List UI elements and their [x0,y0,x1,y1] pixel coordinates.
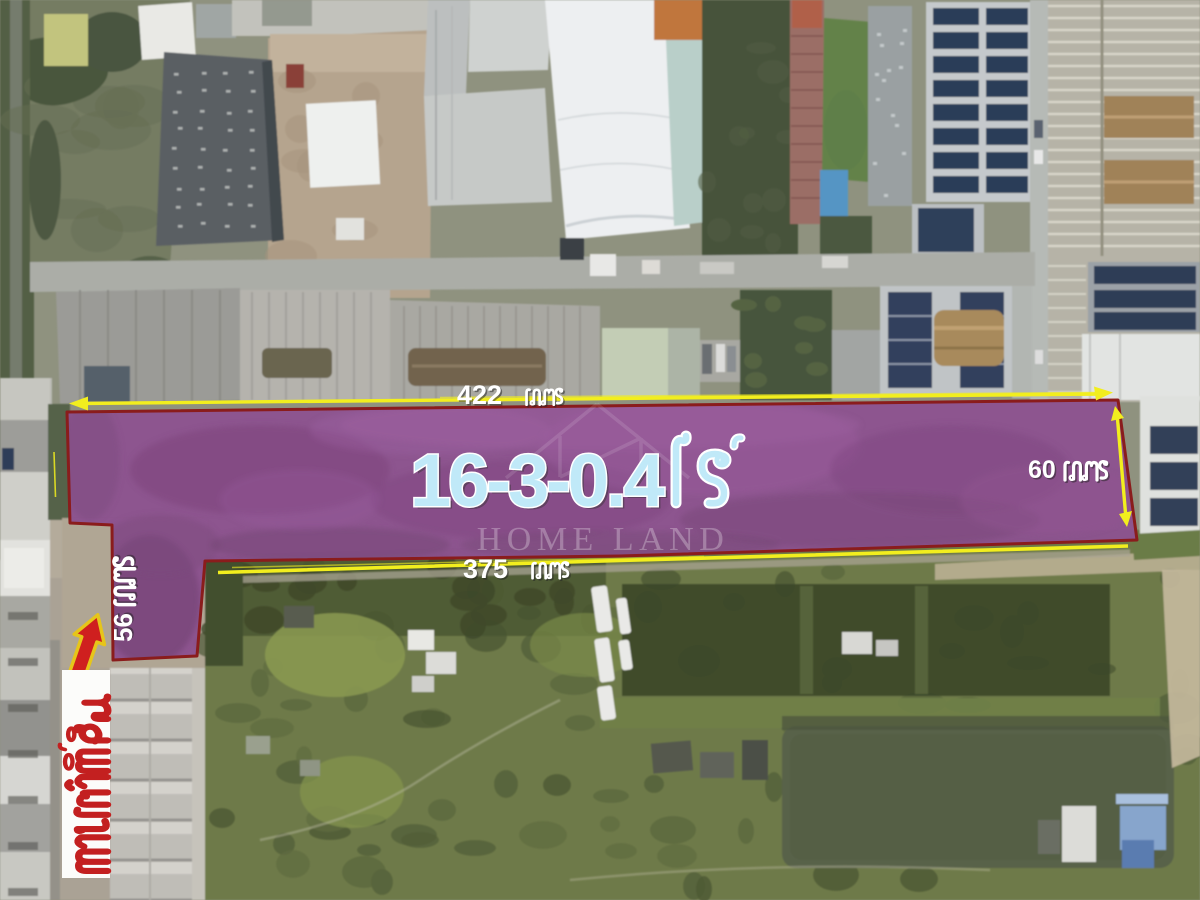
svg-text:56: 56 [108,613,138,642]
svg-text:422: 422 [457,380,502,410]
svg-text:60: 60 [1028,456,1056,484]
svg-text:16-3-0.4: 16-3-0.4 [410,439,664,522]
svg-text:HOME LAND: HOME LAND [477,521,730,558]
svg-text:375: 375 [463,554,508,584]
